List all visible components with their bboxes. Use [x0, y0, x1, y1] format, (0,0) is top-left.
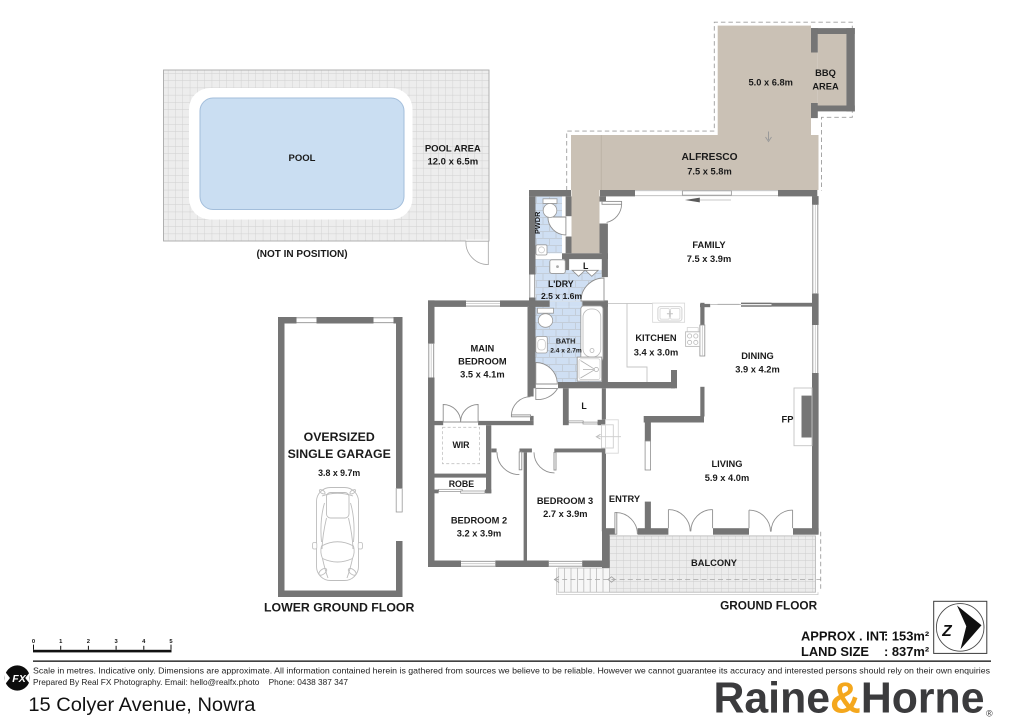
svg-text:LAND SIZE: LAND SIZE [801, 644, 869, 659]
svg-text:BATH: BATH [556, 337, 575, 346]
svg-text:2: 2 [87, 639, 90, 645]
svg-text:BEDROOM: BEDROOM [458, 356, 507, 366]
svg-text:LOWER GROUND FLOOR: LOWER GROUND FLOOR [264, 601, 414, 615]
svg-text:2.4 x 2.7m: 2.4 x 2.7m [550, 348, 582, 355]
svg-text:3.4 x 3.0m: 3.4 x 3.0m [634, 347, 678, 357]
svg-text:5.9 x 4.0m: 5.9 x 4.0m [705, 473, 749, 483]
svg-text:3.9 x 4.2m: 3.9 x 4.2m [735, 365, 779, 375]
svg-text:PWDR: PWDR [533, 211, 542, 234]
svg-text:APPROX . INT: APPROX . INT [801, 629, 887, 644]
svg-text:Raine&Horne: Raine&Horne [714, 675, 985, 723]
svg-text:FAMILY: FAMILY [692, 240, 726, 250]
svg-text:LIVING: LIVING [712, 459, 743, 469]
svg-text:ALFRESCO: ALFRESCO [681, 152, 737, 163]
svg-text:BBQ: BBQ [815, 68, 836, 78]
svg-text:BALCONY: BALCONY [691, 558, 738, 568]
svg-text:FX: FX [12, 673, 26, 685]
svg-text:Z: Z [941, 623, 952, 640]
svg-text:KITCHEN: KITCHEN [635, 333, 677, 343]
svg-text:AREA: AREA [812, 81, 839, 91]
svg-text:L: L [583, 261, 589, 271]
svg-text:7.5 x 5.8m: 7.5 x 5.8m [687, 167, 731, 177]
svg-text:3: 3 [114, 639, 118, 645]
svg-text:2.5 x 1.6m: 2.5 x 1.6m [541, 291, 582, 301]
svg-text:1: 1 [59, 639, 63, 645]
svg-text:L'DRY: L'DRY [548, 279, 574, 289]
svg-text:3.8 x 9.7m: 3.8 x 9.7m [318, 468, 360, 478]
svg-text:L: L [581, 401, 587, 411]
svg-text:BEDROOM 2: BEDROOM 2 [451, 515, 507, 525]
svg-text:MAIN: MAIN [471, 344, 495, 354]
svg-text:DINING: DINING [741, 351, 774, 361]
svg-text:ROBE: ROBE [449, 479, 475, 489]
svg-text:3.2 x 3.9m: 3.2 x 3.9m [457, 528, 501, 538]
svg-text:0: 0 [32, 639, 35, 645]
svg-text:GROUND FLOOR: GROUND FLOOR [720, 599, 817, 613]
svg-text:15 Colyer Avenue, Nowra: 15 Colyer Avenue, Nowra [28, 695, 255, 716]
svg-text:: 153m²: : 153m² [884, 629, 930, 644]
svg-text:3.5 x 4.1m: 3.5 x 4.1m [460, 370, 504, 380]
svg-text:POOL AREA: POOL AREA [425, 144, 481, 155]
svg-text:FP: FP [782, 414, 794, 424]
svg-text:2.7 x 3.9m: 2.7 x 3.9m [543, 509, 587, 519]
svg-text:POOL: POOL [289, 153, 316, 164]
svg-text:5.0 x 6.8m: 5.0 x 6.8m [748, 78, 792, 88]
svg-text:Prepared By Real FX Photograph: Prepared By Real FX Photography. Email: … [33, 677, 348, 687]
svg-text:4: 4 [142, 639, 146, 645]
svg-text:: 837m²: : 837m² [884, 644, 930, 659]
svg-text:(NOT IN POSITION): (NOT IN POSITION) [256, 249, 347, 260]
svg-text:7.5 x 3.9m: 7.5 x 3.9m [687, 254, 731, 264]
svg-text:BEDROOM 3: BEDROOM 3 [537, 496, 593, 506]
svg-text:WIR: WIR [452, 440, 470, 450]
svg-text:12.0 x 6.5m: 12.0 x 6.5m [427, 157, 478, 168]
svg-text:5: 5 [169, 639, 173, 645]
svg-text:®: ® [986, 709, 993, 719]
svg-text:SINGLE GARAGE: SINGLE GARAGE [288, 447, 391, 461]
svg-text:OVERSIZED: OVERSIZED [304, 430, 375, 444]
svg-text:ENTRY: ENTRY [609, 494, 641, 504]
